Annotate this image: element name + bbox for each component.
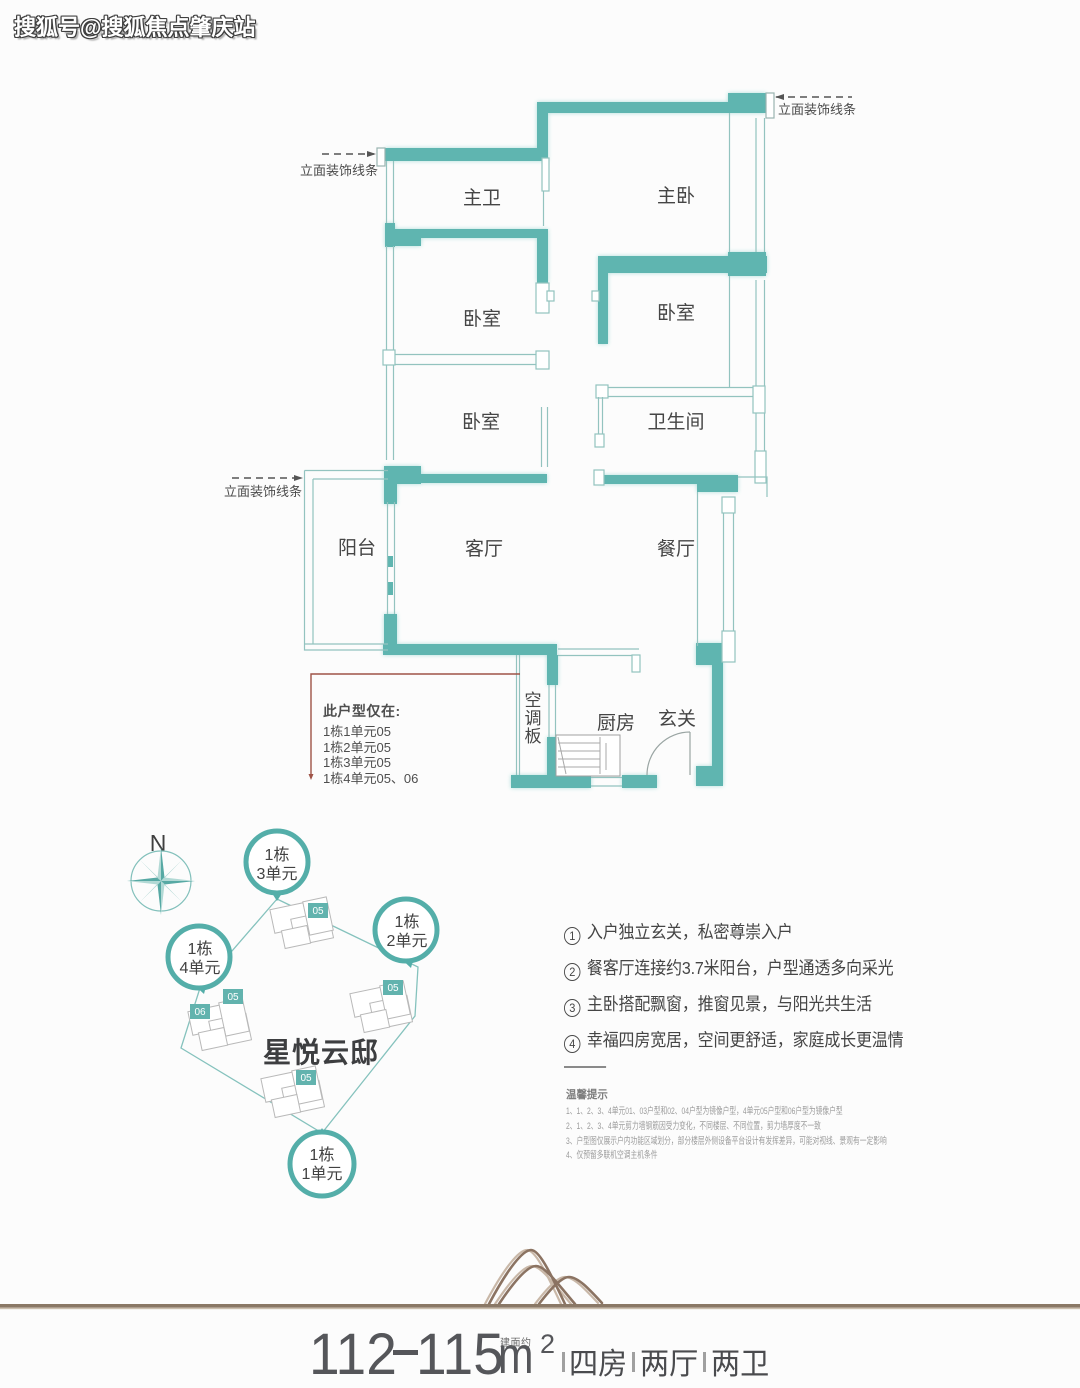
- svg-text:05: 05: [300, 1073, 312, 1084]
- svg-text:卧室: 卧室: [657, 302, 695, 324]
- svg-text:阳台: 阳台: [338, 537, 376, 559]
- svg-text:卧室: 卧室: [463, 308, 501, 330]
- svg-text:客厅: 客厅: [465, 538, 503, 560]
- svg-text:1栋: 1栋: [395, 913, 420, 931]
- svg-text:卧室: 卧室: [462, 411, 500, 433]
- svg-text:1单元: 1单元: [302, 1165, 343, 1183]
- svg-text:立面装饰线条: 立面装饰线条: [224, 484, 302, 499]
- svg-text:主卧: 主卧: [657, 185, 695, 207]
- svg-text:厨房: 厨房: [597, 712, 635, 734]
- svg-text:立面装饰线条: 立面装饰线条: [778, 102, 856, 117]
- svg-text:空: 空: [525, 691, 542, 710]
- svg-text:06: 06: [194, 1007, 206, 1018]
- svg-text:板: 板: [525, 727, 542, 746]
- svg-text:4单元: 4单元: [180, 959, 221, 977]
- svg-text:1栋: 1栋: [310, 1146, 335, 1164]
- svg-text:2单元: 2单元: [387, 932, 428, 950]
- svg-text:05: 05: [312, 906, 324, 917]
- svg-text:卫生间: 卫生间: [647, 411, 704, 433]
- svg-text:05: 05: [387, 983, 399, 994]
- svg-text:立面装饰线条: 立面装饰线条: [300, 163, 378, 178]
- svg-text:餐厅: 餐厅: [657, 538, 695, 560]
- svg-text:调: 调: [525, 709, 542, 728]
- svg-text:3单元: 3单元: [257, 865, 298, 883]
- svg-text:主卫: 主卫: [463, 187, 501, 209]
- svg-text:1栋: 1栋: [265, 846, 290, 864]
- svg-text:05: 05: [227, 992, 239, 1003]
- svg-text:1栋: 1栋: [188, 940, 213, 958]
- svg-text:玄关: 玄关: [658, 708, 696, 730]
